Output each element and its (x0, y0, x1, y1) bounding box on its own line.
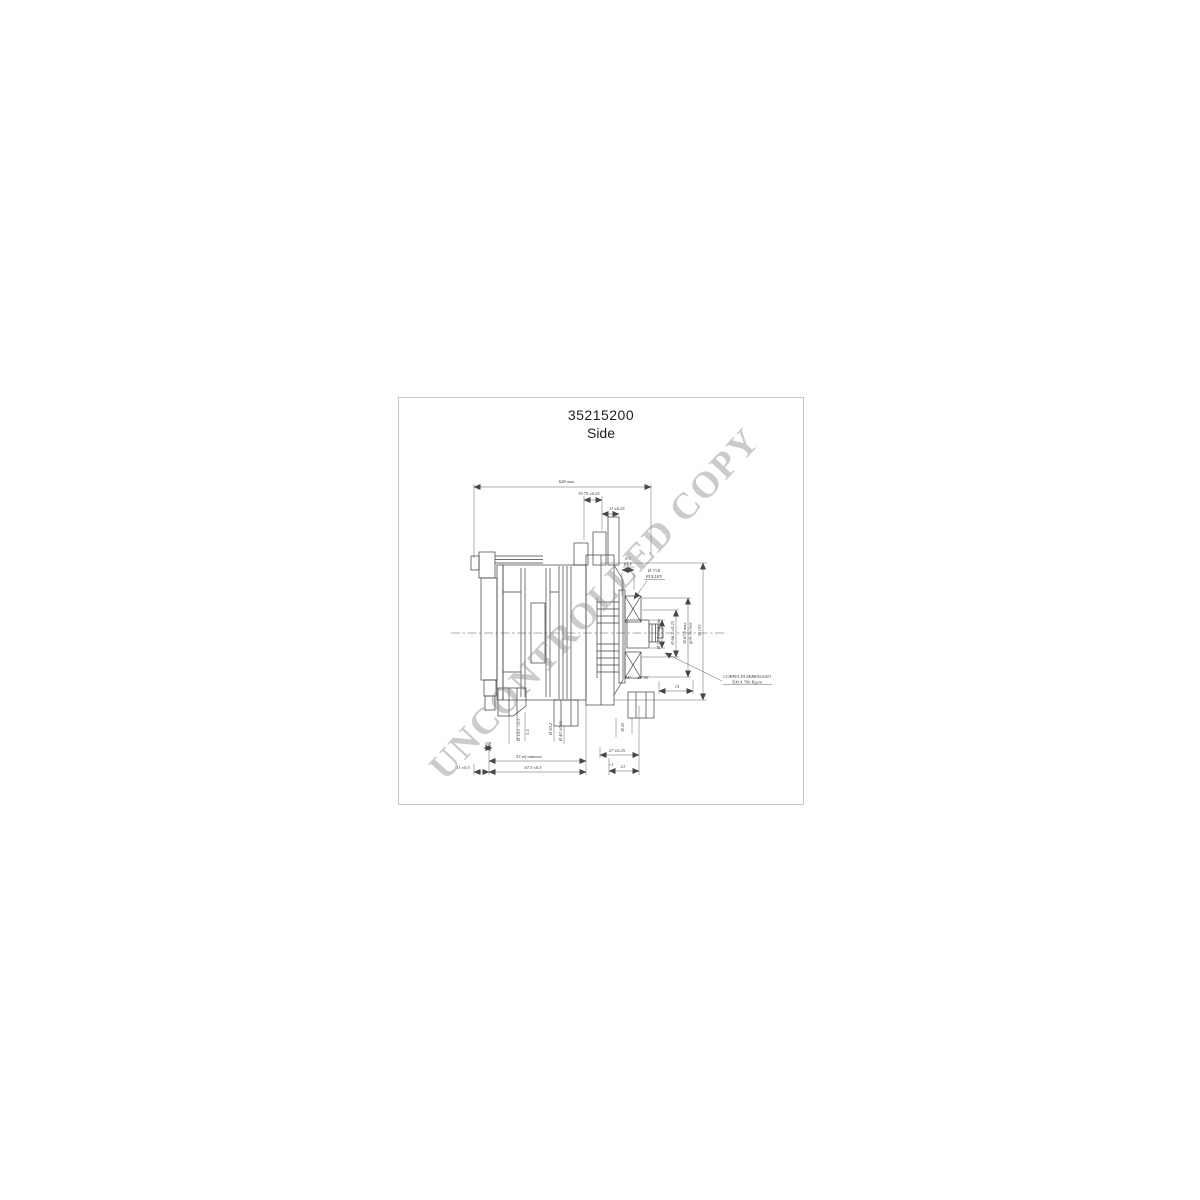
dim-hole-dia: Ø 10.5 +0.3 (516, 718, 521, 742)
dim-5-5: 5.5 (525, 728, 530, 734)
dim-body-dia: Ø 133 (697, 624, 702, 637)
dim-27: 27 ±0.25 (609, 748, 626, 753)
pulley-note-line1: COPPIA DI SERRAGGIO (723, 674, 771, 679)
dim-overall-length: 628 max. (559, 479, 576, 484)
alternator-outline (451, 517, 727, 726)
dim-21-tol: +1 (608, 762, 613, 767)
dim-boss-dia: Ø 50.2 (548, 722, 553, 736)
dim-0-8: 0.8 (485, 741, 491, 746)
dim-foot-hole-dia: Ø 25 (620, 722, 625, 733)
dim-19-75: 19.75 ±0.25 (578, 491, 600, 496)
dim-pulley-dia: Ø 73.8 (647, 568, 661, 573)
dim-groove-root-dia: Ø 66.7 ±0.25 (670, 620, 675, 645)
dim-hub-dia: Ø 55.7 nominale (656, 619, 661, 650)
dim-11b: 11 ±0.5 (456, 765, 470, 770)
dim-groove-width: 8.5 (625, 556, 631, 561)
pulley-callout-label: PULLEY (645, 574, 663, 579)
page: 35215200 Side (0, 0, 1200, 1200)
pulley-note-line2: 500 A 700 Kgcm (732, 680, 763, 685)
dim-21: 21 (621, 764, 626, 769)
dim-15: 15 (675, 684, 680, 689)
dim-outer-dia-note: gole incluse (688, 622, 693, 644)
dim-53: 53 ref annesso (516, 754, 543, 759)
dim-67-5: 67.5 ±0.5 (524, 765, 542, 770)
dim-outer-dia: Ø 67.9 max (682, 623, 687, 645)
dim-angle-20-30: 20°30' (637, 675, 650, 680)
dim-groove-width-ref: REF (623, 562, 632, 567)
technical-drawing: 628 max. 19.75 ±0.25 11 ±0.25 8.5 REF Ø … (399, 398, 803, 802)
drawing-frame: 35215200 Side (398, 397, 804, 805)
dim-spigot-dia: Ø 40 ±0.15 (558, 720, 563, 742)
dim-11: 11 ±0.25 (609, 506, 625, 511)
dim-angle-34: 34° (625, 675, 632, 680)
